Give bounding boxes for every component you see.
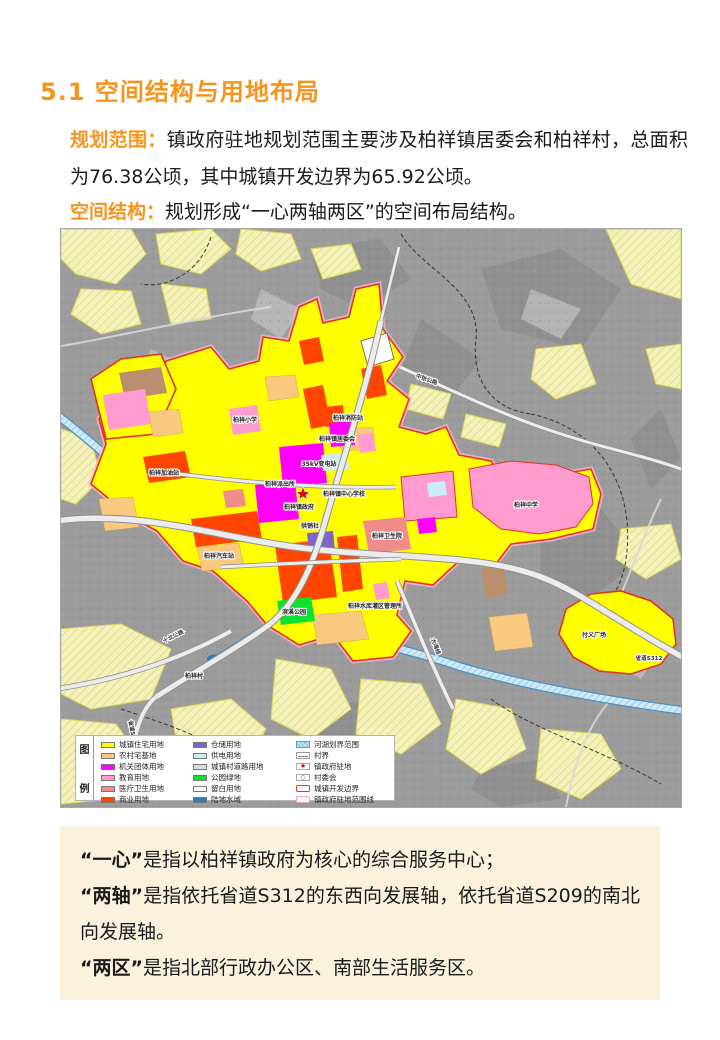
planning-scope-label: 规划范围：	[70, 129, 167, 151]
spatial-structure-text: 规划形成“一心两轴两区”的空间布局结构。	[165, 201, 527, 223]
legend-item: 永久基本农田	[193, 805, 296, 808]
legend-title: 图 例	[76, 736, 94, 800]
map-label-riverside-park: 滨溪公园	[282, 608, 306, 616]
reserved-swatch	[193, 786, 207, 792]
legend-title-bottom: 例	[80, 780, 90, 795]
summary-term: “两区”	[80, 957, 143, 979]
legend-item: 城镇住宅用地	[101, 739, 193, 750]
legend-item: 陆地水域	[193, 794, 296, 805]
village-boundary-symbol	[296, 752, 310, 759]
legend-column-2: 仓储用地 供电用地 城镇村道路用地 公园绿地 留白用地 陆地水域 永久基本农田	[193, 739, 296, 797]
legend-item: ○村委会	[296, 772, 389, 783]
legend-label: 教育用地	[119, 772, 149, 783]
legend-item: 商业用地	[101, 794, 193, 805]
legend-item: 供电用地	[193, 750, 296, 761]
farmland-swatch	[193, 808, 207, 809]
legend-label: 机关团体用地	[119, 761, 164, 772]
power-swatch	[193, 753, 207, 759]
legend-label: 仓储用地	[211, 739, 241, 750]
government-swatch	[101, 764, 115, 770]
legend-item: 工业用地	[101, 805, 193, 808]
legend-item: 公园绿地	[193, 772, 296, 783]
legend-label: 商业用地	[119, 794, 149, 805]
legend-item: 留白用地	[193, 783, 296, 794]
summary-text: 是指依托省道S312的东西向发展轴，依托省道S209的南北向发展轴。	[80, 885, 640, 943]
river-scope-symbol	[296, 741, 310, 748]
legend-item: 机关团体用地	[101, 761, 193, 772]
industry-swatch	[101, 808, 115, 809]
legend-label: 公园绿地	[211, 772, 241, 783]
summary-text: 是指以柏祥镇政府为核心的综合服务中心；	[143, 849, 504, 871]
map-label-fire-station: 柏祥消防站	[333, 414, 363, 422]
paragraph-planning-scope: 规划范围：镇政府驻地规划范围主要涉及柏祥镇居委会和柏祥村，总面积为76.38公顷…	[70, 122, 688, 196]
water-swatch	[193, 797, 207, 803]
health-swatch	[101, 786, 115, 792]
residential-swatch	[101, 742, 115, 748]
legend-item: 医疗卫生用地	[101, 783, 193, 794]
paragraph-spatial-structure: 空间结构：规划形成“一心两轴两区”的空间布局结构。	[70, 194, 688, 231]
summary-text: 是指北部行政办公区、南部生活服务区。	[143, 957, 485, 979]
summary-box: “一心”是指以柏祥镇政府为核心的综合服务中心； “两轴”是指依托省道S312的东…	[60, 826, 660, 1000]
legend-item: 河湖划界范围	[296, 739, 389, 750]
map-label-police-station: 柏祥派出所	[265, 480, 295, 488]
map-label-gas-station: 柏祥加油站	[149, 469, 179, 477]
map-label-residents-committee: 柏祥镇居委会	[319, 435, 356, 443]
map-label-reservoir-office: 柏祥水库灌区管理所	[348, 602, 402, 610]
page-title: 5.1 空间结构与用地布局	[40, 72, 320, 107]
map-label-supply-coop: 供销社	[300, 522, 319, 530]
education-swatch	[101, 775, 115, 781]
road-swatch	[193, 764, 207, 770]
village-committee-icon: ○	[296, 774, 310, 781]
development-boundary-symbol	[296, 785, 310, 792]
legend-label: 城镇村道路用地	[211, 761, 264, 772]
legend-item: 城镇开发边界	[296, 783, 389, 794]
legend-item: 村界	[296, 750, 389, 761]
legend-title-top: 图	[80, 741, 90, 756]
warehouse-swatch	[193, 742, 207, 748]
map-label-baixiang-village: 柏祥村	[185, 672, 203, 680]
map-label-fuyi-square: 付义广场	[582, 631, 606, 639]
document-page: 5.1 空间结构与用地布局 规划范围：镇政府驻地规划范围主要涉及柏祥镇居委会和柏…	[0, 0, 720, 1040]
park-swatch	[193, 775, 207, 781]
legend-label: 陆地水域	[211, 794, 241, 805]
legend-item: 仓储用地	[193, 739, 296, 750]
legend-item: 教育用地	[101, 772, 193, 783]
legend-label: 工业用地	[119, 805, 149, 808]
planning-map-svg: 中张公路 省道S312 省道S209 十北公路 大湾线 柏祥小学 柏祥消防站 柏…	[61, 229, 681, 807]
legend-label: 城镇开发边界	[314, 783, 359, 794]
planning-map: 中张公路 省道S312 省道S209 十北公路 大湾线 柏祥小学 柏祥消防站 柏…	[60, 228, 682, 808]
legend-label: 医疗卫生用地	[119, 783, 164, 794]
map-label-substation: 35kV变电站	[302, 460, 337, 468]
legend-item: ★镇政府驻地	[296, 761, 389, 772]
map-label-town-government: 柏祥镇政府	[284, 503, 314, 511]
map-label-health-center: 柏祥卫生院	[372, 532, 402, 540]
legend-columns: 城镇住宅用地 农村宅基地 机关团体用地 教育用地 医疗卫生用地 商业用地 工业用…	[94, 736, 394, 800]
commercial-swatch	[101, 797, 115, 803]
legend-column-1: 城镇住宅用地 农村宅基地 机关团体用地 教育用地 医疗卫生用地 商业用地 工业用…	[101, 739, 193, 797]
summary-item-one-center: “一心”是指以柏祥镇政府为核心的综合服务中心；	[80, 842, 640, 878]
map-label-central-school: 柏祥镇中心学校	[323, 490, 366, 498]
legend-item: 农村宅基地	[101, 750, 193, 761]
map-label-s312: 省道S312	[635, 654, 663, 662]
legend-label: 城镇住宅用地	[119, 739, 164, 750]
homestead-swatch	[101, 753, 115, 759]
town-gov-star-icon: ★	[296, 763, 310, 770]
legend-label: 永久基本农田	[211, 805, 256, 808]
legend-column-3: 河湖划界范围 村界 ★镇政府驻地 ○村委会 城镇开发边界 镇政府驻地范围线	[296, 739, 389, 797]
legend-item: 镇政府驻地范围线	[296, 794, 389, 805]
gov-scope-line-symbol	[296, 796, 310, 803]
legend-label: 镇政府驻地	[314, 761, 352, 772]
legend-label: 村委会	[314, 772, 337, 783]
summary-item-two-axes: “两轴”是指依托省道S312的东西向发展轴，依托省道S209的南北向发展轴。	[80, 878, 640, 950]
summary-item-two-districts: “两区”是指北部行政办公区、南部生活服务区。	[80, 950, 640, 986]
map-label-primary-school: 柏祥小学	[233, 416, 257, 424]
map-label-bus-station: 柏祥汽车站	[204, 552, 234, 560]
summary-term: “两轴”	[80, 885, 143, 907]
legend-label: 供电用地	[211, 750, 241, 761]
legend-item: 城镇村道路用地	[193, 761, 296, 772]
legend-label: 河湖划界范围	[314, 739, 359, 750]
legend-label: 留白用地	[211, 783, 241, 794]
map-legend: 图 例 城镇住宅用地 农村宅基地 机关团体用地 教育用地 医疗卫生用地 商业用地…	[75, 735, 395, 801]
legend-label: 村界	[314, 750, 329, 761]
legend-label: 农村宅基地	[119, 750, 157, 761]
summary-term: “一心”	[80, 849, 143, 871]
spatial-structure-label: 空间结构：	[70, 201, 165, 223]
map-label-middle-school: 柏祥中学	[514, 501, 538, 509]
legend-label: 镇政府驻地范围线	[314, 794, 374, 805]
